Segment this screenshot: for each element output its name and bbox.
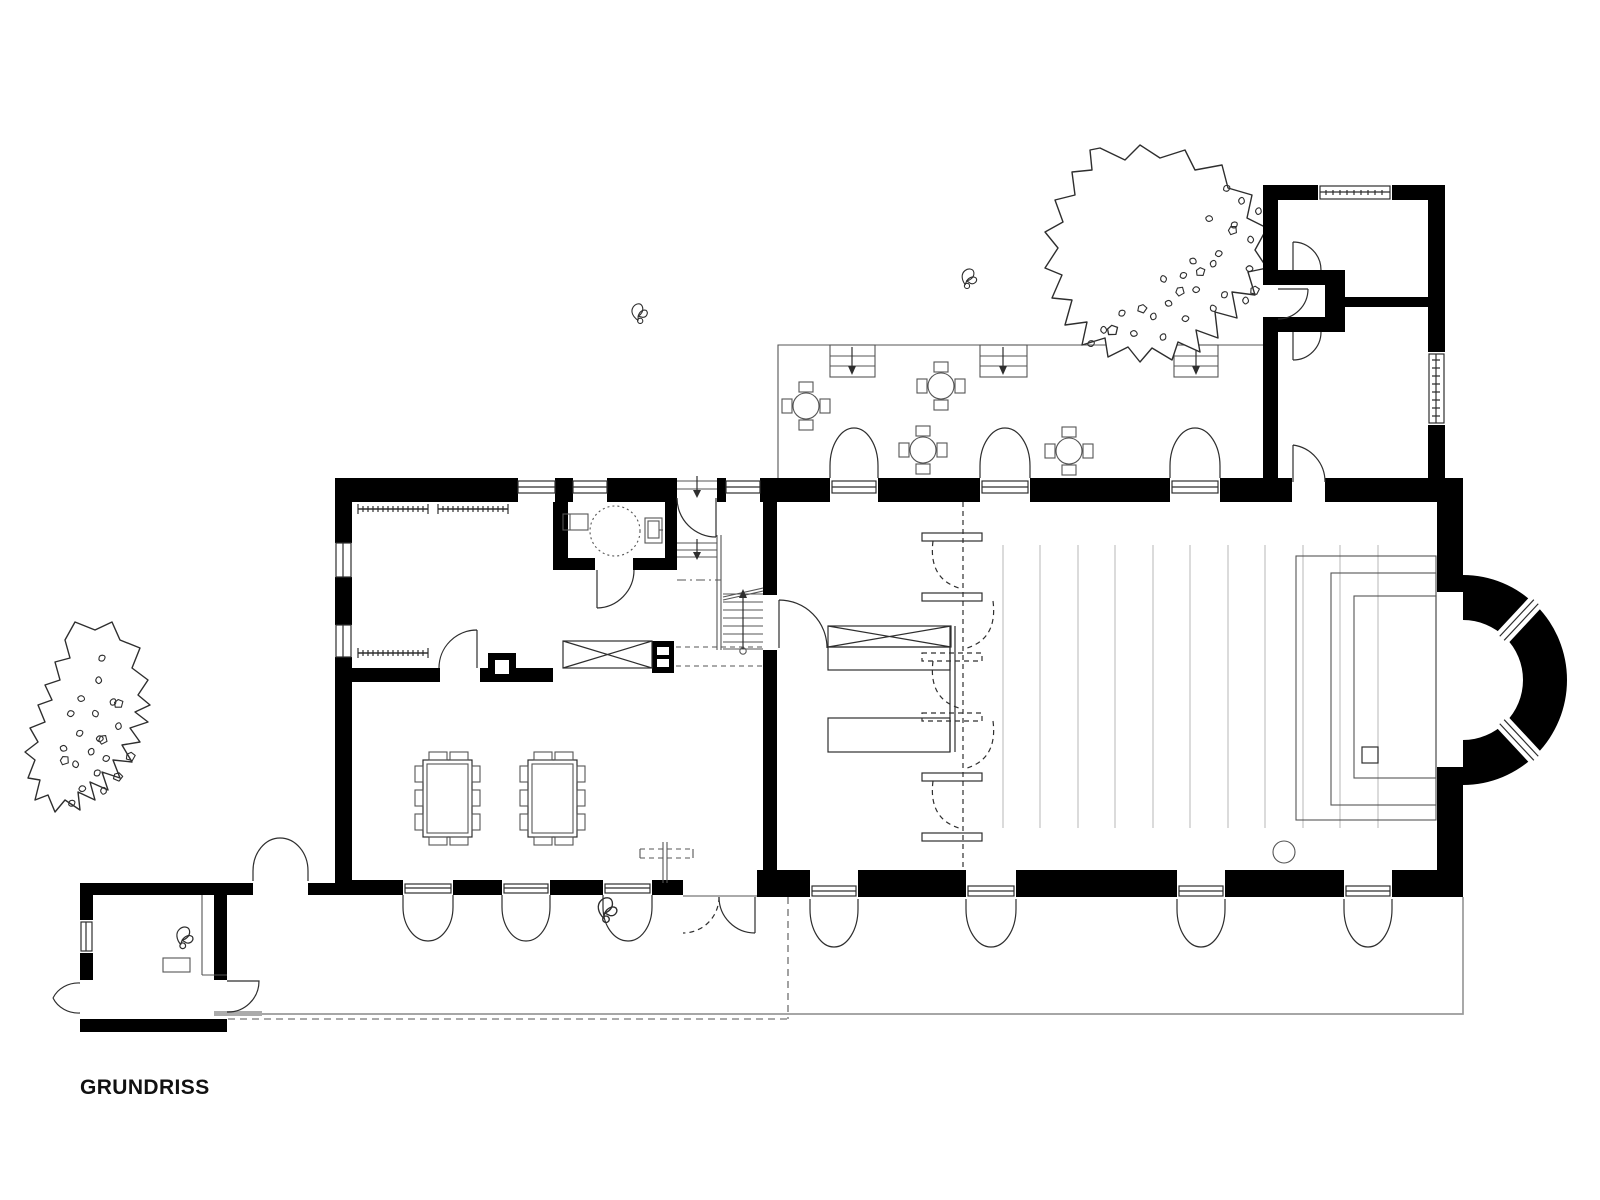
coat-rail — [358, 504, 428, 514]
dining-tables — [415, 752, 585, 845]
lobby-door — [1278, 289, 1308, 319]
window — [336, 543, 351, 577]
storage-crate — [563, 641, 652, 668]
exterior-step — [677, 476, 717, 498]
entrance-screen — [640, 842, 693, 883]
door — [53, 983, 80, 1013]
entrance-door-dashed — [683, 897, 719, 933]
door — [1293, 445, 1325, 482]
washbasin — [645, 518, 663, 543]
double-door — [966, 899, 1016, 947]
floor-lines — [1003, 545, 1378, 828]
door — [779, 600, 827, 648]
tree-small — [25, 622, 150, 812]
table — [520, 752, 585, 845]
tree-large — [1045, 145, 1267, 362]
window — [726, 481, 760, 493]
apse-wall — [1463, 575, 1567, 785]
plant-sprig — [598, 898, 617, 923]
window — [812, 886, 856, 896]
lobby-door — [1293, 242, 1321, 270]
plan-title: GRUNDRISS — [80, 1076, 210, 1100]
door — [227, 981, 259, 1012]
table — [415, 752, 480, 845]
floor-plan-canvas: GRUNDRISS — [0, 0, 1600, 1200]
terrace-table — [899, 426, 947, 474]
terrace-table — [782, 382, 830, 430]
double-door — [980, 428, 1030, 478]
entrance-door — [719, 897, 755, 933]
double-door — [830, 428, 878, 478]
window — [573, 481, 607, 493]
door — [597, 570, 634, 608]
window — [405, 884, 451, 893]
window — [982, 481, 1028, 493]
window — [518, 481, 555, 493]
window — [968, 886, 1014, 896]
wc-room — [563, 506, 663, 556]
plant-sprigs — [176, 268, 978, 949]
terrace-table — [917, 362, 965, 410]
double-door — [810, 899, 858, 947]
terrace-stair — [830, 345, 875, 377]
coat-rail — [358, 648, 428, 658]
chancel-steps — [1273, 556, 1436, 863]
coat-rail — [438, 504, 508, 514]
garden-gate-door — [253, 838, 308, 881]
double-door — [1344, 899, 1392, 947]
cloakroom — [358, 504, 508, 658]
window-mullioned — [1429, 354, 1444, 423]
double-door — [1170, 428, 1220, 478]
doors — [53, 242, 1392, 1013]
plant-sprig — [631, 302, 650, 324]
window — [336, 625, 351, 657]
folding-partition — [922, 502, 994, 868]
door — [677, 498, 716, 537]
windows — [81, 186, 1444, 951]
main-flight — [723, 588, 763, 654]
staircase — [676, 476, 763, 666]
double-door — [603, 895, 652, 941]
lobby-door — [1293, 332, 1321, 360]
double-door — [502, 895, 550, 941]
plant-sprig — [961, 268, 978, 290]
window — [832, 481, 876, 493]
plant-sprig — [176, 926, 194, 949]
terrace-stair — [980, 345, 1027, 377]
lower-flight — [677, 539, 717, 560]
window — [605, 884, 650, 893]
window — [1346, 886, 1390, 896]
floor-plan-drawing — [0, 0, 1600, 1200]
window — [1172, 481, 1218, 493]
double-door — [1177, 899, 1225, 947]
terrace — [778, 345, 1263, 478]
door — [439, 630, 477, 668]
window — [81, 922, 92, 951]
terrace-table — [1045, 427, 1093, 475]
window — [1179, 886, 1223, 896]
window-mullioned — [1320, 186, 1390, 199]
site-boundary-lines — [214, 896, 1463, 1019]
window — [504, 884, 548, 893]
double-door — [403, 895, 453, 941]
